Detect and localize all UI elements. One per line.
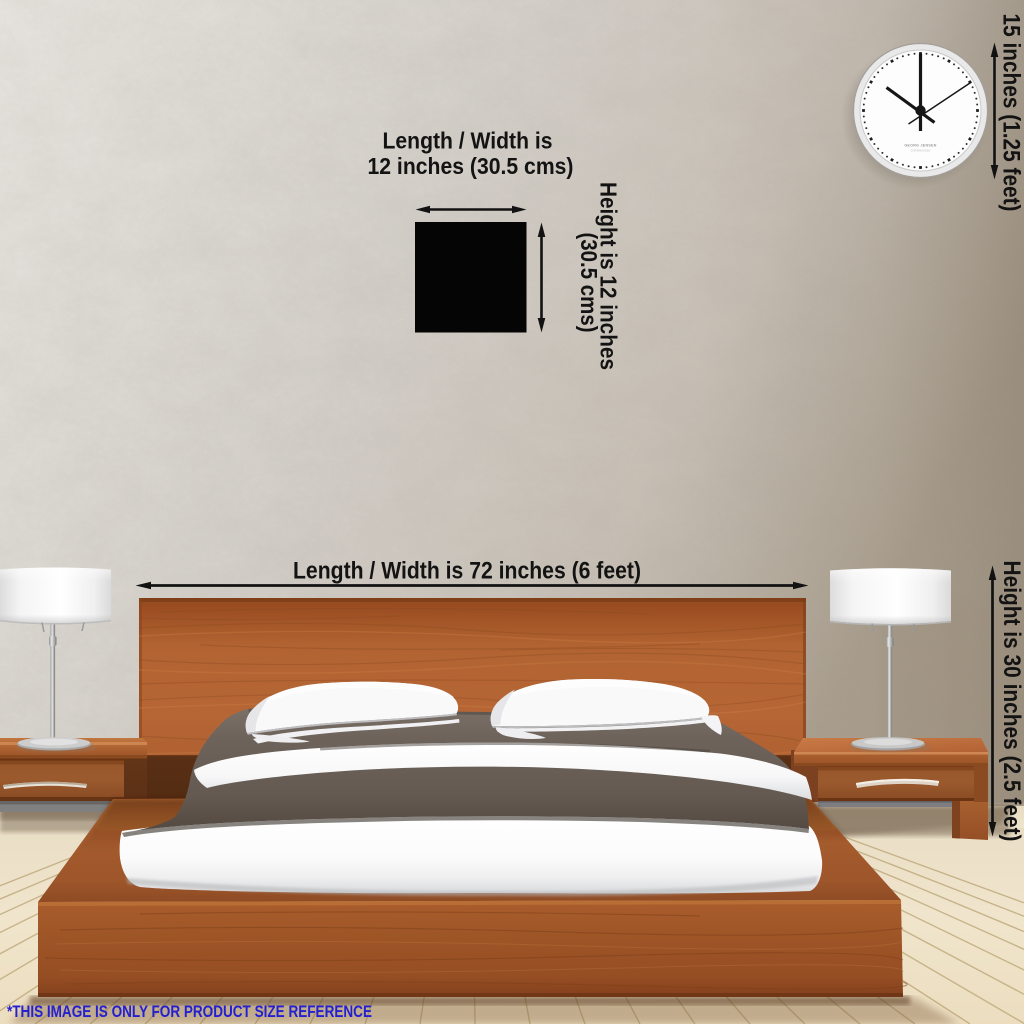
svg-text:(30.5 cms): (30.5 cms) <box>576 233 602 333</box>
svg-text:Height is 30 inches (2.5 feet): Height is 30 inches (2.5 feet) <box>998 561 1024 842</box>
svg-text:Length / Width is: Length / Width is <box>383 128 553 154</box>
svg-text:GEORG JENSEN: GEORG JENSEN <box>904 144 936 148</box>
svg-text:*THIS IMAGE IS ONLY FOR PRODUC: *THIS IMAGE IS ONLY FOR PRODUCT SIZE REF… <box>7 1003 372 1021</box>
svg-text:COPENHAGEN: COPENHAGEN <box>910 150 930 153</box>
svg-text:Length / Width is 72 inches (6: Length / Width is 72 inches (6 feet) <box>293 558 641 585</box>
svg-text:12 inches (30.5 cms): 12 inches (30.5 cms) <box>368 153 574 179</box>
svg-text:15 inches (1.25 feet): 15 inches (1.25 feet) <box>998 14 1024 212</box>
